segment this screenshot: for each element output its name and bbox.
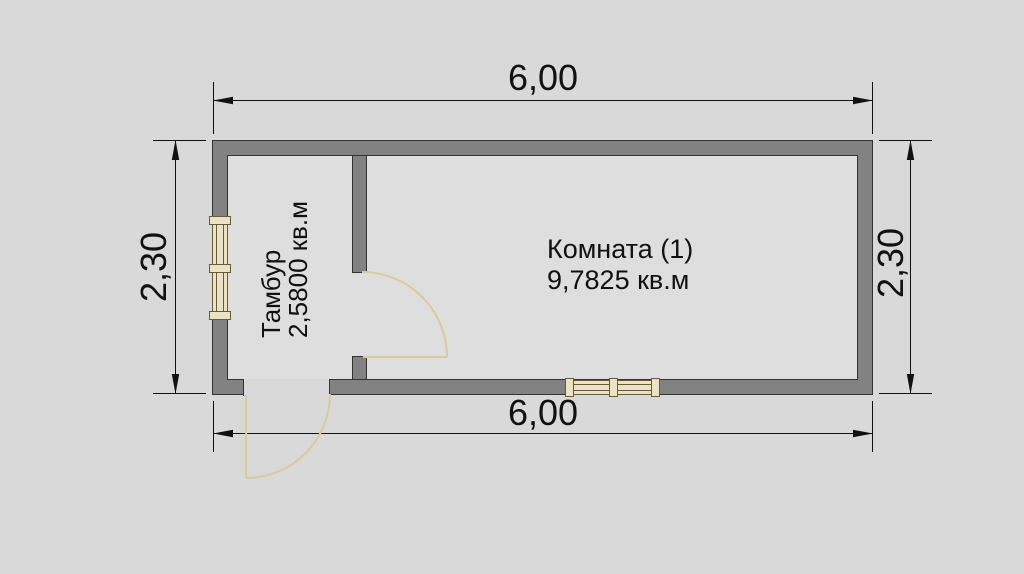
building-interior <box>227 155 858 380</box>
room1-name: Комната (1) <box>547 234 693 265</box>
dimension-height-right: 2,30 <box>871 163 911 363</box>
room1-label: Комната (1) 9,7825 кв.м <box>547 234 693 296</box>
window-mullion <box>651 378 660 397</box>
entrance-door-opening <box>243 379 330 396</box>
window-mullion <box>209 311 231 320</box>
entrance-door-swing-arc <box>246 394 330 478</box>
window-mullion <box>209 216 231 225</box>
left-wall-window <box>212 216 228 320</box>
dimension-width-top: 6,00 <box>443 58 643 98</box>
dimension-height-left: 2,30 <box>134 167 174 367</box>
dimension-width-bottom: 6,00 <box>443 393 643 433</box>
vestibule-label: Тамбур 2,5800 кв.м <box>258 198 314 338</box>
partition-wall-upper <box>352 155 367 273</box>
floor-plan-canvas: 6,00 6,00 2,30 2,30 Комната (1) 9,7825 к… <box>0 0 1024 574</box>
window-mullion <box>209 264 231 273</box>
vestibule-area: 2,5800 кв.м <box>285 198 312 338</box>
partition-wall-stub <box>352 356 367 380</box>
vestibule-name: Тамбур <box>258 198 285 338</box>
room1-area: 9,7825 кв.м <box>547 265 693 296</box>
